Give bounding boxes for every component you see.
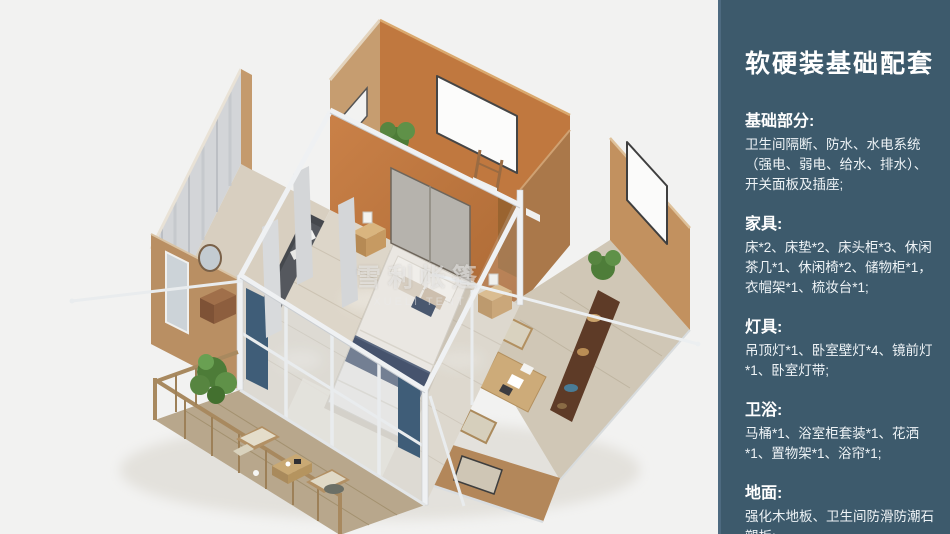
- sidebar-title: 软硬装基础配套: [745, 44, 936, 80]
- spec-section-bathroom: 卫浴: 马桶*1、浴室柜套装*1、花洒*1、置物架*1、浴帘*1;: [745, 396, 936, 464]
- spec-section-flooring: 地面: 强化木地板、卫生间防滑防潮石塑板;: [745, 479, 936, 534]
- slide: 雪利帐篷 XUELI TENT 软硬装基础配套 基础部分: 卫生间隔断、防水、水…: [0, 0, 950, 534]
- floorplan-3d-render: [0, 0, 718, 534]
- spec-section-basics: 基础部分: 卫生间隔断、防水、水电系统（强电、弱电、给水、排水）、开关面板及插座…: [745, 107, 936, 195]
- frame-post: [237, 275, 243, 390]
- section-heading: 灯具:: [745, 313, 936, 337]
- section-body: 马桶*1、浴室柜套装*1、花洒*1、置物架*1、浴帘*1;: [745, 424, 936, 464]
- section-heading: 家具:: [745, 210, 936, 234]
- spec-section-furniture: 家具: 床*2、床垫*2、床头柜*3、休闲茶几*1、休闲椅*2、储物柜*1，衣帽…: [745, 210, 936, 298]
- section-heading: 基础部分:: [745, 107, 936, 131]
- full-length-mirror: [166, 252, 188, 333]
- deck-light: [253, 470, 259, 476]
- section-heading: 卫浴:: [745, 396, 936, 420]
- spec-section-lighting: 灯具: 吊顶灯*1、卧室壁灯*4、镜前灯*1、卧室灯带;: [745, 313, 936, 381]
- table-lamp: [363, 212, 372, 223]
- section-body: 吊顶灯*1、卧室壁灯*4、镜前灯*1、卧室灯带;: [745, 341, 936, 381]
- section-body: 卫生间隔断、防水、水电系统（强电、弱电、给水、排水）、开关面板及插座;: [745, 135, 936, 195]
- section-body: 床*2、床垫*2、床头柜*3、休闲茶几*1、休闲椅*2、储物柜*1，衣帽架*1、…: [745, 238, 936, 298]
- spec-sidebar: 软硬装基础配套 基础部分: 卫生间隔断、防水、水电系统（强电、弱电、给水、排水）…: [718, 0, 950, 534]
- floorplan-render-area: 雪利帐篷 XUELI TENT: [0, 0, 718, 534]
- frame-post: [422, 390, 428, 505]
- round-mirror: [199, 245, 221, 271]
- section-body: 强化木地板、卫生间防滑防潮石塑板;: [745, 507, 936, 534]
- section-heading: 地面:: [745, 479, 936, 503]
